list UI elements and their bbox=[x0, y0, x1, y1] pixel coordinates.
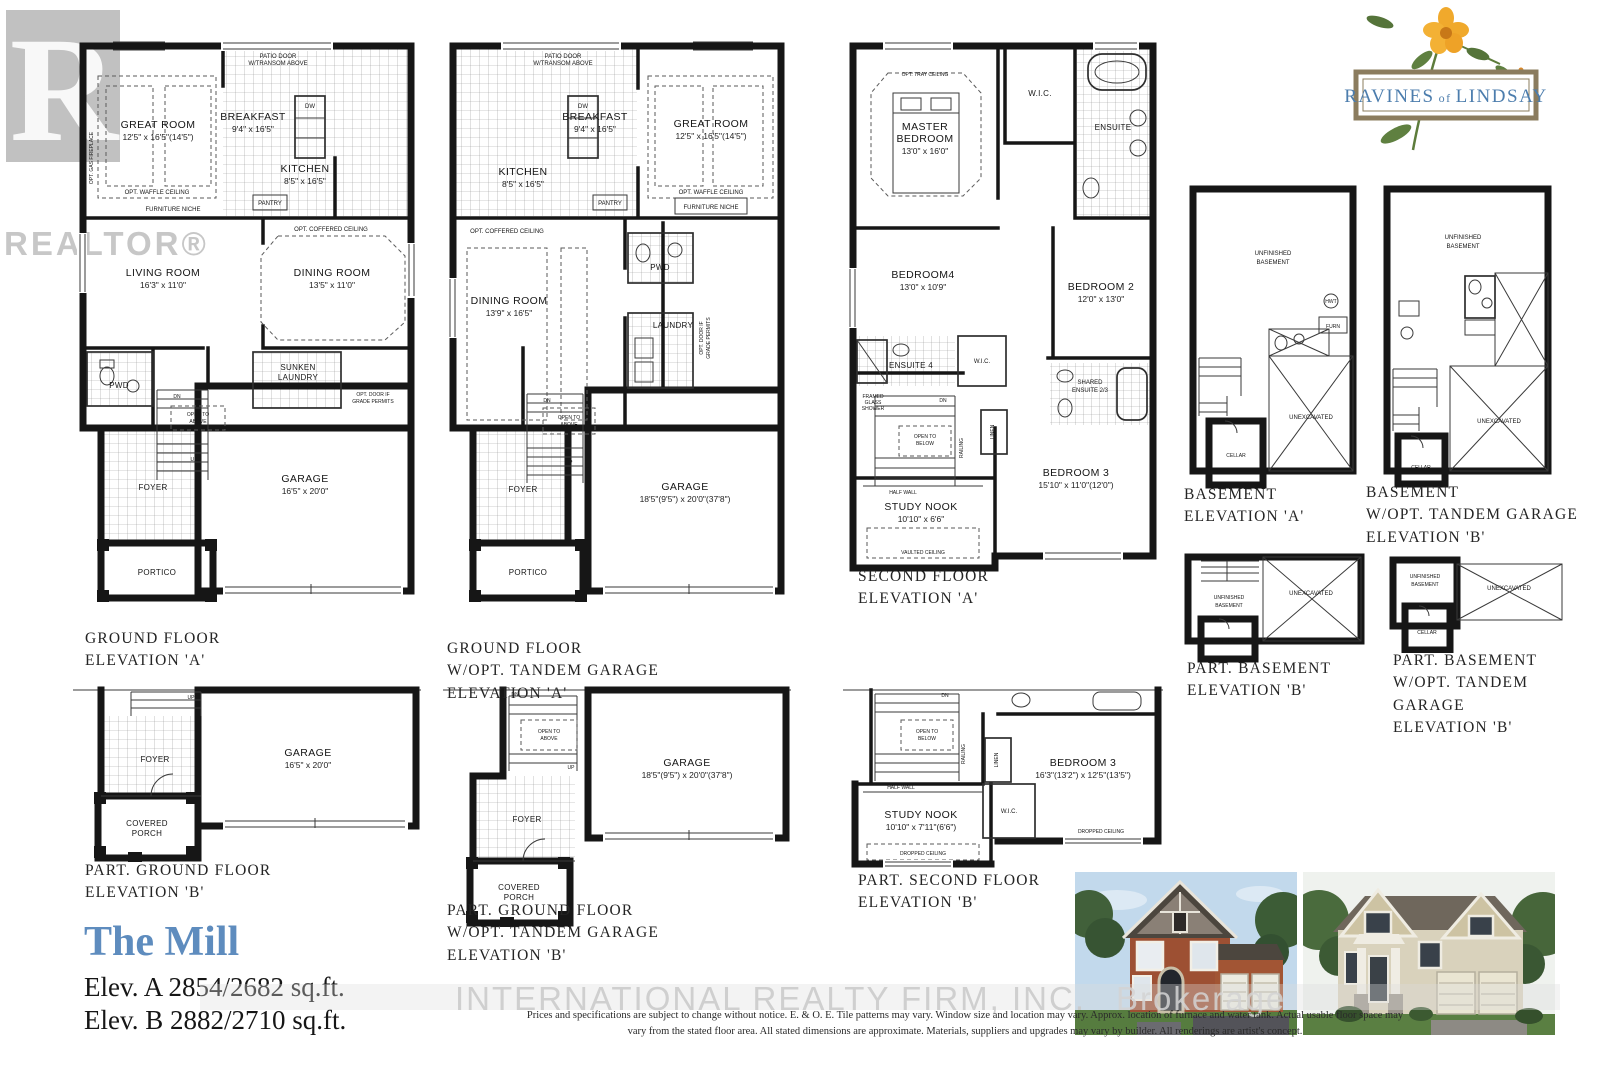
anno-railing: RAILING bbox=[959, 438, 965, 458]
anno-optdoor: OPT. DOOR IF bbox=[699, 321, 705, 354]
room-breakfast: BREAKFAST bbox=[220, 111, 286, 123]
room-wic: W.I.C. bbox=[1028, 89, 1052, 98]
room-kitchen-dim: 8'5" x 16'5" bbox=[502, 179, 544, 189]
title-line: W/OPT. TANDEM GARAGE bbox=[1393, 672, 1600, 717]
title-line: ELEVATION 'B' bbox=[1187, 680, 1331, 702]
room-garage-dim: 18'5"(9'5") x 20'0"(37'8") bbox=[642, 770, 733, 780]
anno-pantry: PANTRY bbox=[598, 201, 622, 207]
anno-cellar: CELLAR bbox=[1226, 453, 1246, 459]
anno-waffle: OPT. WAFFLE CEILING bbox=[679, 190, 744, 196]
room-garage-dim: 16'5" x 20'0" bbox=[285, 760, 332, 770]
title-line: ELEVATION 'A' bbox=[858, 588, 989, 610]
title-line: PART. SECOND FLOOR bbox=[858, 870, 1040, 892]
anno-open-above: OPEN TO bbox=[558, 415, 580, 421]
room-bed4: BEDROOM4 bbox=[891, 269, 954, 281]
anno-fireplace: OPT. GAS FIREPLACE bbox=[89, 131, 95, 184]
room-bed2-dim: 12'0" x 13'0" bbox=[1078, 294, 1125, 304]
room-bed3-dim: 16'3"(13'2") x 12'5"(13'5") bbox=[1035, 770, 1131, 780]
floor-plan-part-ground-b: UP FOYER COVERED PORCH GARAGE 16'5" x 20… bbox=[73, 676, 423, 871]
room-dining-dim: 13'5" x 11'0" bbox=[309, 280, 355, 290]
anno-unfinished2: BASEMENT bbox=[1446, 244, 1479, 250]
community-logo: RAVINESofLINDSAY bbox=[1318, 2, 1553, 154]
title-line: ELEVATION 'B' bbox=[1393, 717, 1600, 739]
anno-open-above2: ABOVE bbox=[189, 419, 207, 425]
title-line: ELEVATION 'B' bbox=[1366, 527, 1578, 549]
anno-hwt: HWT bbox=[1325, 299, 1336, 305]
anno-dn: DN bbox=[941, 693, 949, 699]
room-ensuite4: ENSUITE 4 bbox=[889, 361, 933, 370]
anno-coffered: OPT. COFFERED CEILING bbox=[470, 229, 544, 235]
room-master-dim: 13'0" x 16'0" bbox=[902, 146, 949, 156]
title-line: W/OPT. TANDEM GARAGE bbox=[1366, 504, 1578, 526]
anno-pantry: PANTRY bbox=[258, 201, 282, 207]
room-master2: BEDROOM bbox=[896, 133, 953, 145]
room-garage: GARAGE bbox=[661, 481, 708, 493]
room-dining: DINING ROOM bbox=[471, 295, 548, 307]
room-portico: PORTICO bbox=[509, 568, 547, 577]
room-bed2: BEDROOM 2 bbox=[1068, 281, 1135, 293]
room-breakfast: BREAKFAST bbox=[562, 111, 628, 123]
anno-up: UP bbox=[568, 765, 576, 771]
plan-title-basement-a: BASEMENT ELEVATION 'A' bbox=[1184, 484, 1304, 529]
plan-title-ground-a: GROUND FLOOR ELEVATION 'A' bbox=[85, 628, 220, 673]
plan-title-part-ground-b: PART. GROUND FLOOR ELEVATION 'B' bbox=[85, 860, 271, 905]
plan-title-part-basement-b: PART. BASEMENT ELEVATION 'B' bbox=[1187, 658, 1331, 703]
anno-dn: DN bbox=[173, 394, 181, 400]
anno-framed3: SHOWER bbox=[862, 406, 885, 412]
room-porch: COVERED bbox=[126, 819, 168, 828]
floor-plan-ground-a: PATIO DOOR W/TRANSOM ABOVE GREAT ROOM 12… bbox=[73, 38, 423, 663]
room-kitchen: KITCHEN bbox=[281, 163, 330, 175]
anno-unfinished: UNFINISHED bbox=[1445, 235, 1482, 241]
plan-title-second-a: SECOND FLOOR ELEVATION 'A' bbox=[858, 566, 989, 611]
anno-open-below: OPEN TO bbox=[916, 729, 938, 735]
title-line: W/OPT. TANDEM GARAGE bbox=[447, 660, 659, 682]
anno-open-below: OPEN TO bbox=[914, 434, 936, 440]
room-bed3: BEDROOM 3 bbox=[1043, 467, 1110, 479]
room-great-dim: 12'5" x 16'5"(14'5") bbox=[675, 131, 746, 141]
anno-patio-door: PATIO DOOR bbox=[545, 54, 582, 60]
anno-patio-door: PATIO DOOR bbox=[260, 54, 297, 60]
room-porch: COVERED bbox=[498, 883, 540, 892]
room-kitchen-dim: 8'5" x 16'5" bbox=[284, 176, 326, 186]
title-line: PART. GROUND FLOOR bbox=[447, 900, 659, 922]
anno-cellar: CELLAR bbox=[1417, 630, 1437, 636]
anno-dn: DN bbox=[543, 398, 551, 404]
anno-niche: FURNITURE NICHE bbox=[146, 207, 201, 213]
anno-up: UP bbox=[566, 460, 574, 466]
title-line: ELEVATION 'A' bbox=[1184, 506, 1304, 528]
room-pwd: PWD bbox=[650, 263, 670, 272]
anno-open-below2: BELOW bbox=[916, 441, 934, 447]
room-ensuite: ENSUITE bbox=[1095, 123, 1132, 132]
floor-plan-part-basement-tandem-b: UNFINISHED BASEMENT UNEXCAVATED CELLAR bbox=[1385, 548, 1570, 653]
room-foyer: FOYER bbox=[140, 755, 169, 764]
anno-unexcavated: UNEXCAVATED bbox=[1487, 586, 1531, 592]
room-shared: SHARED bbox=[1077, 380, 1103, 386]
anno-up: UP bbox=[188, 695, 196, 701]
room-bed3: BEDROOM 3 bbox=[1050, 757, 1117, 769]
floor-plan-part-second-b: DN OPEN TO BELOW RAILING HALF WALL STUDY… bbox=[843, 676, 1165, 881]
room-foyer: FOYER bbox=[138, 483, 167, 492]
disclaimer: Prices and specifications are subject to… bbox=[385, 1008, 1545, 1041]
anno-dropped: DROPPED CEILING bbox=[900, 851, 946, 857]
anno-open-above2: ABOVE bbox=[560, 422, 578, 428]
anno-vaulted: VAULTED CEILING bbox=[901, 550, 945, 556]
plan-title-basement-tandem-b: BASEMENT W/OPT. TANDEM GARAGE ELEVATION … bbox=[1366, 482, 1578, 549]
title-line: ELEVATION 'A' bbox=[447, 683, 659, 705]
anno-linen: LINEN bbox=[994, 752, 1000, 767]
anno-open-above: OPEN TO bbox=[187, 412, 209, 418]
room-dining-dim: 13'9" x 16'5" bbox=[486, 308, 533, 318]
title-line: ELEVATION 'A' bbox=[85, 650, 220, 672]
floor-plan-basement-tandem-b: UNFINISHED BASEMENT UNEXCAVATED CELLAR bbox=[1353, 181, 1558, 493]
anno-patio-door2: W/TRANSOM ABOVE bbox=[248, 61, 307, 67]
room-shared2: ENSUITE 2/3 bbox=[1072, 388, 1109, 394]
title-line: BASEMENT bbox=[1366, 482, 1578, 504]
anno-linen: LINEN bbox=[990, 424, 996, 439]
room-foyer: FOYER bbox=[508, 485, 537, 494]
disclaimer-line2: vary from the stated floor area. All sta… bbox=[385, 1024, 1545, 1040]
anno-half-wall: HALF WALL bbox=[887, 785, 915, 791]
anno-unfinished: UNFINISHED bbox=[1255, 251, 1292, 257]
room-dining: DINING ROOM bbox=[294, 267, 371, 279]
anno-waffle: OPT. WAFFLE CEILING bbox=[125, 190, 190, 196]
floor-plan-second-a: OPT. TRAY CEILING MASTER BEDROOM 13'0" x… bbox=[843, 38, 1165, 583]
title-line: ELEVATION 'B' bbox=[447, 945, 659, 967]
room-living: LIVING ROOM bbox=[126, 267, 200, 279]
title-line: W/OPT. TANDEM GARAGE bbox=[447, 922, 659, 944]
plan-title-ground-tandem-a: GROUND FLOOR W/OPT. TANDEM GARAGE ELEVAT… bbox=[447, 638, 659, 705]
anno-niche: FURNITURE NICHE bbox=[684, 205, 739, 211]
title-line: PART. BASEMENT bbox=[1393, 650, 1600, 672]
anno-up: UP bbox=[191, 457, 199, 463]
plan-title-part-basement-tandem-b: PART. BASEMENT W/OPT. TANDEM GARAGE ELEV… bbox=[1393, 650, 1600, 740]
anno-cellar: CELLAR bbox=[1218, 639, 1238, 645]
room-great-dim: 12'5" x 16'5"(14'5") bbox=[122, 132, 193, 142]
room-laundry: SUNKEN bbox=[280, 363, 315, 372]
room-laundry: LAUNDRY bbox=[653, 321, 694, 330]
room-breakfast-dim: 9'4" x 16'5" bbox=[574, 124, 616, 134]
anno-patio-door2: W/TRANSOM ABOVE bbox=[533, 61, 592, 67]
title-line: ELEVATION 'B' bbox=[858, 892, 1040, 914]
anno-dw: DW bbox=[305, 104, 315, 110]
room-study-dim: 10'10" x 6'6" bbox=[898, 514, 945, 524]
anno-optdoor: OPT. DOOR IF bbox=[356, 392, 389, 398]
room-garage-dim: 18'5"(9'5") x 20'0"(37'8") bbox=[640, 494, 731, 504]
title-line: PART. GROUND FLOOR bbox=[85, 860, 271, 882]
title-line: GROUND FLOOR bbox=[447, 638, 659, 660]
title-line: SECOND FLOOR bbox=[858, 566, 989, 588]
title-line: GROUND FLOOR bbox=[85, 628, 220, 650]
room-breakfast-dim: 9'4" x 16'5" bbox=[232, 124, 274, 134]
room-pwd: PWD bbox=[109, 381, 129, 390]
room-study: STUDY NOOK bbox=[884, 809, 957, 821]
room-foyer: FOYER bbox=[512, 815, 541, 824]
anno-optdoor2: GRADE PERMITS bbox=[706, 317, 712, 359]
room-bed4-dim: 13'0" x 10'9" bbox=[900, 282, 947, 292]
floor-plan-part-basement-b: UNFINISHED BASEMENT UNEXCAVATED CELLAR bbox=[1183, 551, 1373, 666]
room-study: STUDY NOOK bbox=[884, 501, 957, 513]
room-portico: PORTICO bbox=[138, 568, 176, 577]
room-porch2: PORCH bbox=[132, 829, 162, 838]
anno-open-above: OPEN TO bbox=[538, 729, 560, 735]
floor-plan-ground-tandem-a: PATIO DOOR W/TRANSOM ABOVE BREAKFAST 9'4… bbox=[443, 38, 793, 638]
title-line: ELEVATION 'B' bbox=[85, 882, 271, 904]
anno-optdoor2: GRADE PERMITS bbox=[352, 399, 394, 405]
anno-furn: FURN bbox=[1326, 324, 1340, 330]
room-laundry2: LAUNDRY bbox=[278, 373, 319, 382]
anno-half-wall: HALF WALL bbox=[889, 490, 917, 496]
floor-plan-basement-a: UNFINISHED BASEMENT UNEXCAVATED CELLAR H… bbox=[1181, 181, 1366, 499]
room-garage-dim: 16'5" x 20'0" bbox=[282, 486, 329, 496]
room-kitchen: KITCHEN bbox=[499, 166, 548, 178]
anno-unexcavated: UNEXCAVATED bbox=[1289, 591, 1333, 597]
room-great: GREAT ROOM bbox=[121, 119, 196, 131]
room-great: GREAT ROOM bbox=[674, 118, 749, 130]
anno-dropped2: DROPPED CEILING bbox=[1078, 829, 1124, 835]
room-master: MASTER bbox=[902, 121, 948, 133]
anno-unfinished2: BASEMENT bbox=[1411, 582, 1439, 588]
disclaimer-line1: Prices and specifications are subject to… bbox=[385, 1008, 1545, 1024]
anno-unfinished2: BASEMENT bbox=[1215, 603, 1243, 609]
anno-unexcavated: UNEXCAVATED bbox=[1477, 419, 1521, 425]
room-garage: GARAGE bbox=[281, 473, 328, 485]
anno-unfinished: UNFINISHED bbox=[1214, 595, 1245, 601]
room-living-dim: 16'3" x 11'0" bbox=[140, 280, 186, 290]
anno-unfinished2: BASEMENT bbox=[1256, 260, 1289, 266]
floorplan-brochure-page: { "branding": { "realtor": "REALTOR®", "… bbox=[0, 0, 1600, 1078]
anno-unexcavated: UNEXCAVATED bbox=[1289, 415, 1333, 421]
anno-dn: DN bbox=[939, 398, 947, 404]
anno-cellar: CELLAR bbox=[1411, 465, 1431, 471]
anno-railing: RAILING bbox=[961, 744, 967, 764]
plan-title-part-ground-tandem-b: PART. GROUND FLOOR W/OPT. TANDEM GARAGE … bbox=[447, 900, 659, 967]
plan-title-part-second-b: PART. SECOND FLOOR ELEVATION 'B' bbox=[858, 870, 1040, 915]
anno-coffered: OPT. COFFERED CEILING bbox=[294, 227, 368, 233]
anno-unfinished: UNFINISHED bbox=[1410, 574, 1441, 580]
room-garage: GARAGE bbox=[284, 747, 331, 759]
room-wic2: W.I.C. bbox=[974, 359, 991, 365]
anno-tray: OPT. TRAY CEILING bbox=[902, 72, 949, 78]
anno-open-below2: BELOW bbox=[918, 736, 936, 742]
anno-dw: DW bbox=[578, 104, 588, 110]
model-name: The Mill bbox=[84, 918, 239, 966]
room-bed3-dim: 15'10" x 11'0"(12'0") bbox=[1038, 480, 1113, 490]
floor-plan-part-ground-tandem-b: DN OPEN TO ABOVE UP FOYER COVERED PORCH … bbox=[443, 676, 793, 938]
title-line: PART. BASEMENT bbox=[1187, 658, 1331, 680]
title-line: BASEMENT bbox=[1184, 484, 1304, 506]
room-wic: W.I.C. bbox=[1001, 809, 1018, 815]
room-garage: GARAGE bbox=[663, 757, 710, 769]
anno-open-above2: ABOVE bbox=[540, 736, 558, 742]
room-study-dim: 10'10" x 7'11"(6'6") bbox=[886, 822, 957, 832]
